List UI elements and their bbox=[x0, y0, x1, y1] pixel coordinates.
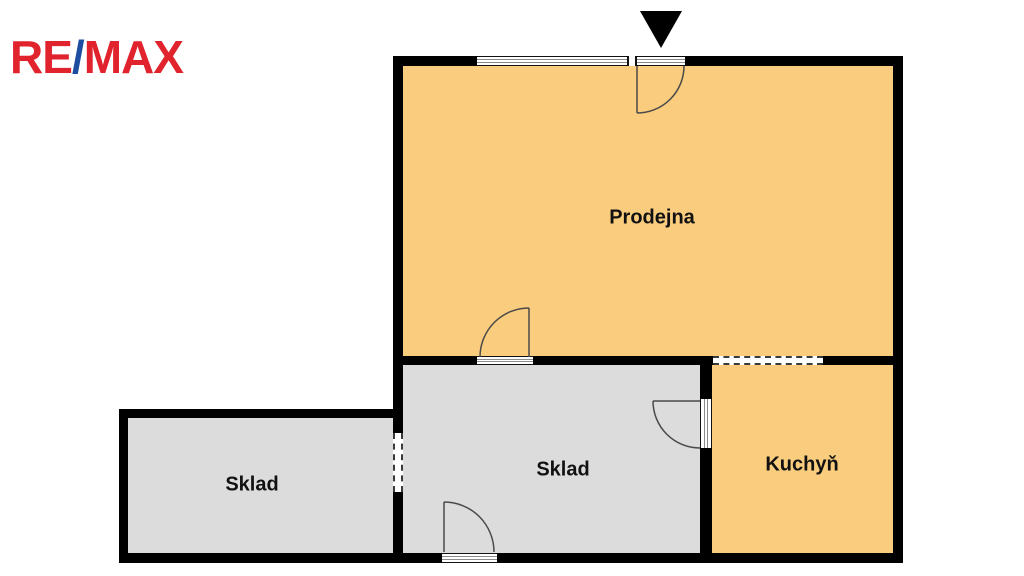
wall-divider-segment-b bbox=[533, 356, 713, 365]
logo-slash-icon: / bbox=[72, 31, 84, 83]
entrance-door-frame bbox=[637, 56, 685, 66]
wall-sklad-left-top bbox=[119, 409, 403, 418]
room-label-sklad-left: Sklad bbox=[225, 474, 278, 497]
wall-right-outer bbox=[893, 56, 903, 563]
wall-divider-segment-a bbox=[393, 356, 477, 365]
door-frame-sklad-kuchyn bbox=[700, 399, 712, 448]
room-label-sklad-center: Sklad bbox=[536, 459, 589, 482]
room-label-kuchyn: Kuchyň bbox=[765, 454, 838, 477]
door-threshold-sklad-exit bbox=[442, 553, 497, 563]
wall-sklads-upper bbox=[393, 357, 403, 433]
window-icon bbox=[477, 56, 627, 66]
remax-logo: RE/MAX bbox=[10, 34, 183, 80]
wall-bottom-left-segment bbox=[119, 553, 442, 563]
logo-max: MAX bbox=[84, 31, 183, 83]
wall-top-right-segment bbox=[685, 56, 903, 66]
wall-prodejna-left bbox=[393, 56, 403, 365]
wall-sklad-kuchyn-upper bbox=[700, 357, 712, 399]
room-label-prodejna: Prodejna bbox=[609, 207, 695, 230]
logo-re: RE bbox=[10, 31, 72, 83]
entrance-arrow-icon bbox=[640, 11, 682, 48]
opening-prodejna-kuchyn bbox=[713, 356, 823, 365]
wall-sklads-lower bbox=[393, 492, 403, 553]
wall-divider-segment-c bbox=[823, 356, 903, 365]
door-threshold-prodejna-sklad bbox=[477, 356, 533, 365]
floorplan-canvas: RE/MAX bbox=[0, 0, 1024, 576]
wall-top-left-segment bbox=[393, 56, 477, 66]
wall-sklad-kuchyn-lower bbox=[700, 448, 712, 553]
wall-sklad-left-left bbox=[119, 409, 128, 563]
opening-sklad-sklad bbox=[393, 433, 403, 492]
wall-bottom-right-segment bbox=[497, 553, 903, 563]
window-post bbox=[627, 56, 637, 66]
